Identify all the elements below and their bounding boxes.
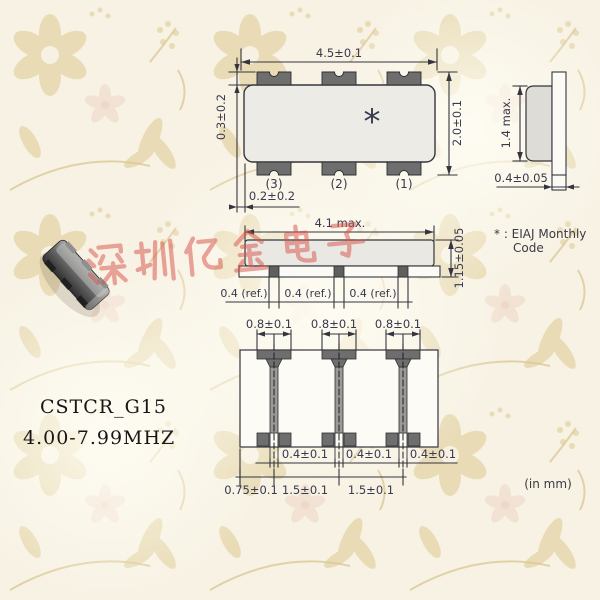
datasheet-page: 4.5±0.1 2.0±0.1 0.3±0.2 0.2±0.2 * (3) (2… [0,0,600,600]
eiaj-marking-asterisk: * [364,102,381,142]
dim-gap-1: 0.4±0.1 [282,447,328,461]
dim-pitch-1: 0.75±0.1 [224,483,278,497]
dim-pad-width-2: 0.8±0.1 [311,317,357,331]
units-note: (in mm) [524,477,572,491]
dim-terminal-top: 0.3±0.2 [214,94,228,140]
datasheet-canvas: 4.5±0.1 2.0±0.1 0.3±0.2 0.2±0.2 * (3) (2… [0,0,600,600]
dim-terminal-ref-3: 0.4 (ref.) [349,287,396,300]
dim-front-height: 1.15±0.05 [452,228,466,289]
pin-label-3: (3) [266,177,283,191]
resonator-body-end [526,86,552,161]
dim-terminal-ref-1: 0.4 (ref.) [220,287,267,300]
dim-terminal-side: 0.2±0.2 [249,189,295,203]
dim-end-thickness: 0.4±0.05 [494,171,548,185]
dim-gap-2: 0.4±0.1 [346,447,392,461]
dim-top-height: 2.0±0.1 [450,100,464,146]
footnote-line1: * : EIAJ Monthly [494,227,586,241]
dim-pad-width-1: 0.8±0.1 [246,317,292,331]
dim-front-width: 4.1 max. [315,216,366,230]
footnote-line2: Code [513,241,544,255]
dim-top-width: 4.5±0.1 [316,46,362,60]
dim-end-height: 1.4 max. [499,98,513,149]
resonator-body-top [244,85,435,162]
product-frequency-range: 4.00-7.99MHZ [23,427,175,449]
dim-pitch-3: 1.5±0.1 [348,483,394,497]
dim-gap-3: 0.4±0.1 [410,447,456,461]
pin-label-2: (2) [331,177,348,191]
end-view-substrate [552,72,566,190]
pin-label-1: (1) [396,177,413,191]
dim-pad-width-3: 0.8±0.1 [375,317,421,331]
product-series: CSTCR_G15 [40,396,167,418]
dim-pitch-2: 1.5±0.1 [282,483,328,497]
dim-terminal-ref-2: 0.4 (ref.) [284,287,331,300]
